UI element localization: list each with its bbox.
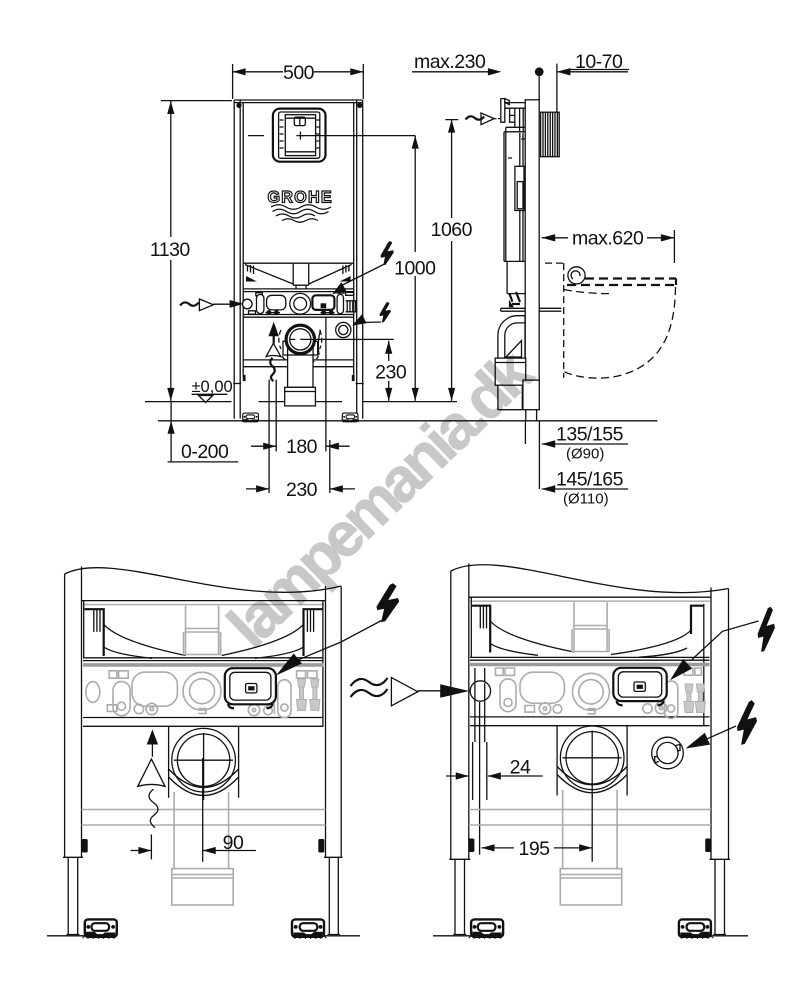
svg-text:max.620: max.620 — [572, 228, 644, 250]
svg-text:1060: 1060 — [431, 219, 473, 241]
svg-text:GROHE: GROHE — [268, 189, 333, 207]
svg-text:180: 180 — [286, 436, 318, 458]
svg-text:0-200: 0-200 — [181, 441, 229, 463]
svg-text:230: 230 — [286, 479, 318, 501]
svg-text:1130: 1130 — [150, 239, 191, 261]
svg-text:±0,00: ±0,00 — [192, 378, 233, 396]
svg-text:230: 230 — [375, 362, 407, 384]
svg-text:(Ø110): (Ø110) — [563, 491, 609, 508]
svg-text:145/165: 145/165 — [556, 469, 624, 491]
svg-text:max.230: max.230 — [414, 51, 486, 73]
svg-text:24: 24 — [510, 757, 531, 779]
svg-text:195: 195 — [518, 838, 550, 860]
svg-text:1000: 1000 — [394, 258, 436, 280]
svg-text:500: 500 — [283, 62, 315, 84]
svg-text:135/155: 135/155 — [556, 424, 624, 446]
svg-text:90: 90 — [223, 832, 244, 854]
svg-text:(Ø90): (Ø90) — [566, 446, 604, 463]
